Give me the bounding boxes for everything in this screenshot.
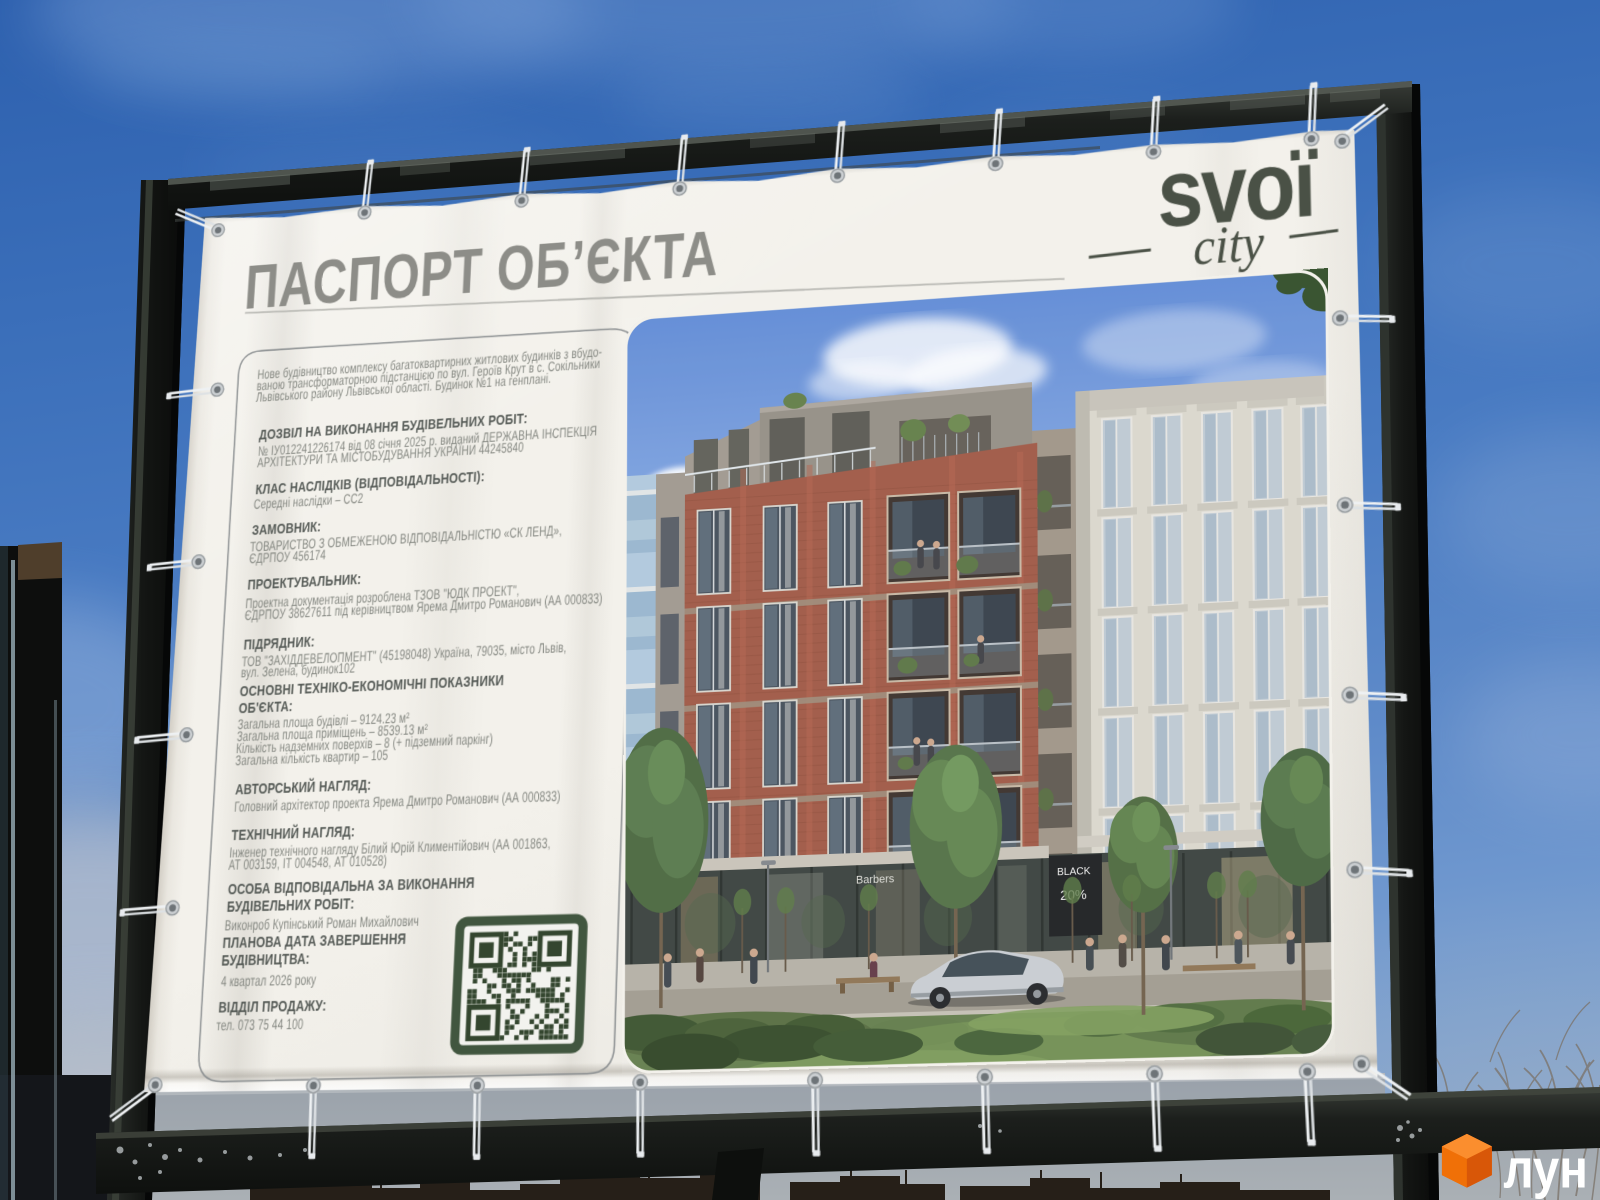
svg-text:city: city <box>1193 213 1265 276</box>
svg-text:лун: лун <box>1503 1138 1587 1200</box>
